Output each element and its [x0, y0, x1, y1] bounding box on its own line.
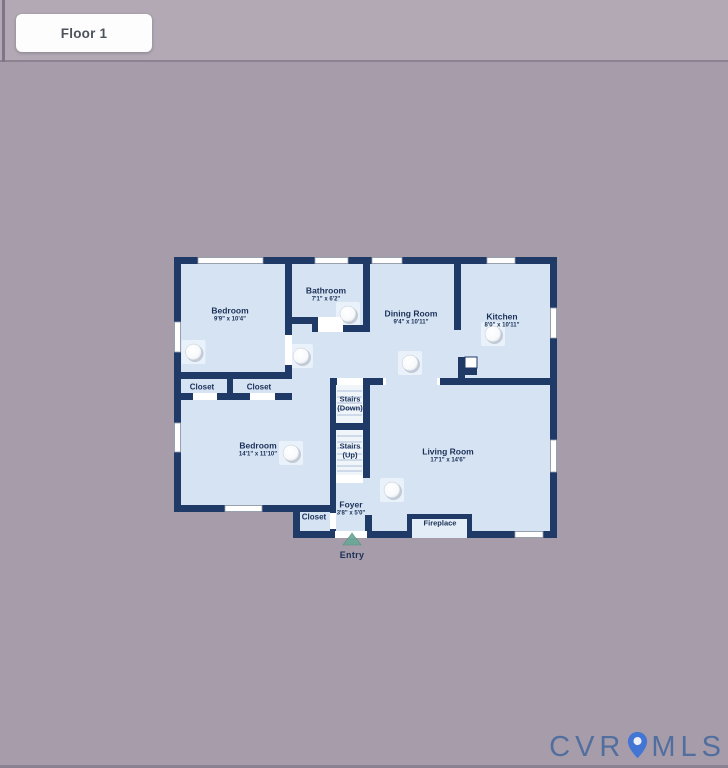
floorplan-page: Floor 1: [0, 0, 728, 768]
room-label-bedroom-upper: Bedroom 9'9" x 10'4": [211, 307, 248, 324]
floor-selector-chip[interactable]: Floor 1: [16, 14, 152, 52]
page-edge-line: [2, 0, 5, 62]
room-label-kitchen: Kitchen 8'0" x 10'11": [485, 313, 520, 330]
room-label-foyer: Foyer 3'8" x 5'0": [337, 501, 366, 518]
room-label-bathroom: Bathroom 7'1" x 6'2": [306, 287, 346, 304]
fireplace-label: Fireplace: [424, 520, 457, 529]
watermark-mls-text: MLS: [651, 731, 726, 764]
watermark-cvrmls: CVR MLS: [549, 730, 726, 764]
room-label-dining-room: Dining Room 9'4" x 10'11": [385, 310, 438, 327]
closet-label-2: Closet: [247, 382, 271, 391]
kitchen-nook: [465, 357, 477, 368]
closet-label-1: Closet: [190, 382, 214, 391]
location-pin-icon: [627, 731, 648, 759]
stairs-down-label: Stairs (Down): [337, 395, 362, 414]
room-label-living-room: Living Room 17'1" x 14'6": [422, 448, 473, 465]
stairs-up-label: Stairs (Up): [340, 442, 361, 461]
watermark-cvr-text: CVR: [549, 731, 625, 764]
floorplan-image: Bedroom 9'9" x 10'4" Bathroom 7'1" x 6'2…: [174, 257, 557, 569]
entry-label: Entry: [340, 550, 365, 560]
room-label-bedroom-lower: Bedroom 14'1" x 11'10": [239, 442, 277, 459]
floor-chip-label: Floor 1: [61, 26, 107, 41]
closet-label-3: Closet: [302, 512, 326, 521]
floorplan-drawing: [174, 257, 557, 569]
header-band: Floor 1: [0, 0, 728, 62]
